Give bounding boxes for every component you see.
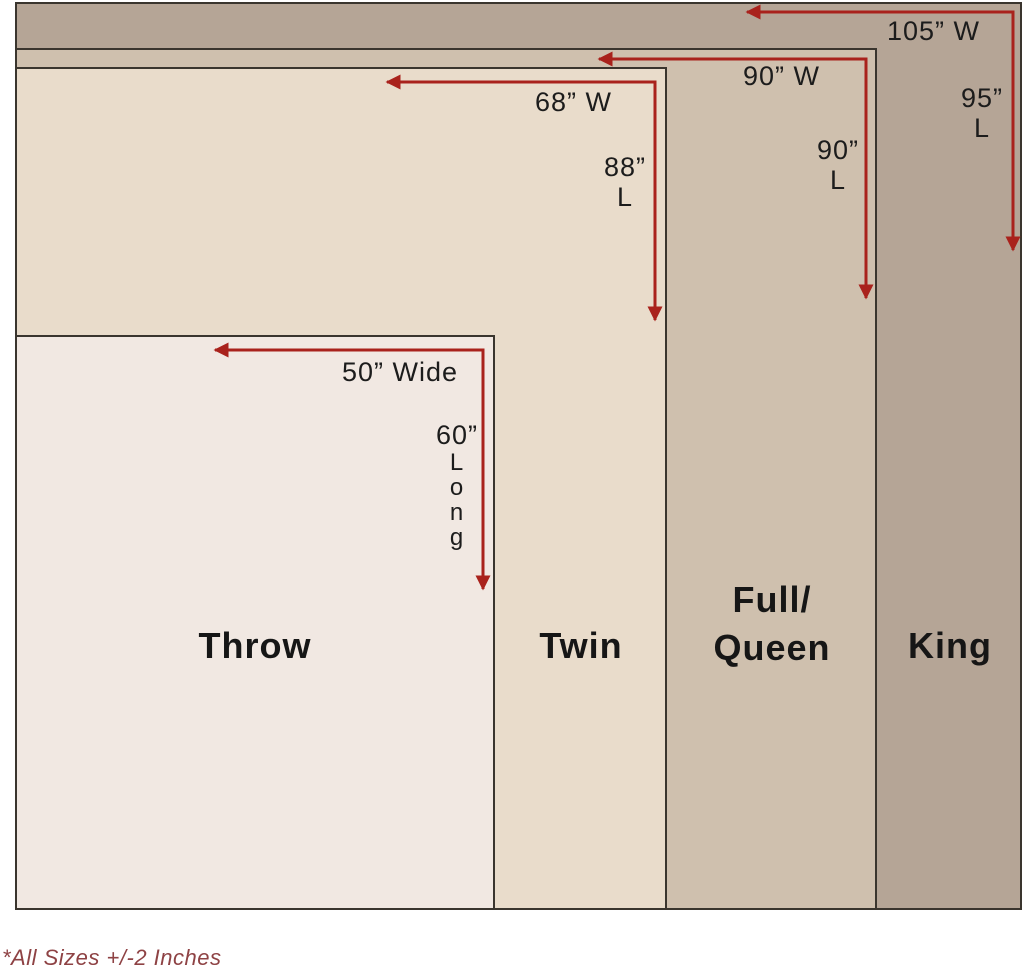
full-queen-name-line1: Full/	[672, 576, 872, 624]
king-length-label: 95” L	[947, 83, 1017, 143]
twin-name-label: Twin	[481, 622, 681, 670]
throw-name-label: Throw	[105, 622, 405, 670]
blanket-size-diagram: 105” W 90” W 68” W 50” Wide 95” L 90” L …	[0, 0, 1024, 976]
king-length-unit: L	[947, 113, 1017, 143]
size-tolerance-note: *All Sizes +/-2 Inches	[2, 945, 221, 971]
full-queen-name-label: Full/ Queen	[672, 576, 872, 672]
king-name-label: King	[850, 622, 1024, 670]
full-queen-length-unit: L	[803, 165, 873, 195]
full-queen-length-value: 90”	[803, 135, 873, 165]
throw-length-unit: L o n g	[427, 450, 487, 550]
twin-length-label: 88” L	[590, 152, 660, 212]
full-queen-name-line2: Queen	[672, 624, 872, 672]
full-queen-length-label: 90” L	[803, 135, 873, 195]
twin-width-label: 68” W	[452, 87, 612, 117]
throw-width-label: 50” Wide	[298, 357, 458, 387]
twin-length-value: 88”	[590, 152, 660, 182]
king-width-label: 105” W	[800, 16, 980, 46]
throw-length-label: 60” L o n g	[427, 420, 487, 550]
full-queen-width-label: 90” W	[660, 61, 820, 91]
twin-length-unit: L	[590, 182, 660, 212]
king-length-value: 95”	[947, 83, 1017, 113]
throw-length-value: 60”	[427, 420, 487, 450]
